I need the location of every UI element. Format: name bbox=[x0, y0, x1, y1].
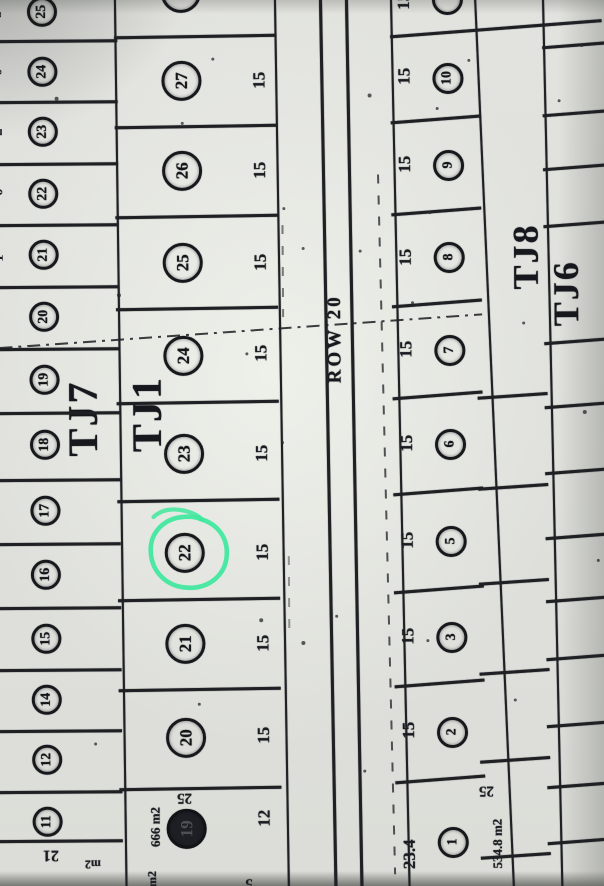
lot-circle: 24 bbox=[27, 57, 57, 87]
lot-number: 26 bbox=[172, 162, 192, 179]
ink-speck bbox=[411, 301, 414, 304]
grid-line-horizontal bbox=[393, 486, 483, 495]
lot-number: 19 bbox=[177, 820, 197, 837]
grid-line-vertical bbox=[319, 0, 338, 886]
grid-line-horizontal bbox=[114, 34, 276, 39]
lot-circle: 22 bbox=[165, 533, 205, 573]
grid-line-horizontal bbox=[543, 221, 604, 228]
lot-number: 1 bbox=[445, 838, 461, 845]
lot-circle: 26 bbox=[162, 151, 202, 191]
lot-circle: 2 bbox=[436, 716, 467, 747]
lot-dim-label: 15 bbox=[394, 0, 414, 18]
ink-speck bbox=[245, 352, 248, 355]
edge-fragment: 2 bbox=[0, 123, 6, 141]
grid-line-horizontal bbox=[391, 206, 481, 215]
grid-line-horizontal bbox=[0, 162, 118, 165]
lot-circle: 3 bbox=[436, 621, 467, 652]
block-label-tj7: TJ7 bbox=[60, 353, 107, 483]
lot-number: 22 bbox=[35, 187, 51, 201]
bottom-mid-unit-fragment: m2 bbox=[145, 864, 161, 886]
lot-number: 18 bbox=[37, 438, 53, 452]
ink-speck bbox=[94, 742, 97, 745]
edge-fragment: 1 bbox=[0, 249, 7, 267]
grid-line-horizontal bbox=[0, 100, 118, 103]
lot-circle: 10 bbox=[432, 62, 463, 93]
bottom-left-width-fragment: 21 bbox=[34, 846, 68, 864]
grid-line-horizontal bbox=[547, 782, 604, 789]
lot-dim-label: 15 bbox=[251, 336, 271, 370]
lot-number: 23 bbox=[174, 445, 194, 462]
ink-speck bbox=[597, 559, 600, 562]
lot19-side-width-label: 25 bbox=[166, 788, 202, 806]
lot-circle: 8 bbox=[433, 241, 464, 272]
grid-line-horizontal bbox=[0, 839, 123, 842]
lot-number: 3 bbox=[443, 633, 459, 640]
ink-speck bbox=[363, 770, 366, 773]
lot-number: 6 bbox=[442, 440, 458, 447]
grid-line-horizontal bbox=[478, 392, 548, 399]
lot-dim-label: 15 bbox=[251, 245, 271, 279]
lot-dim-label: 15 bbox=[398, 619, 418, 653]
ink-speck bbox=[181, 122, 184, 125]
grid-line-horizontal bbox=[393, 390, 483, 399]
lot-dim-label: 15 bbox=[395, 147, 415, 181]
lot-circle: 21 bbox=[165, 624, 205, 664]
lot-circle: 21 bbox=[29, 240, 59, 270]
grid-line-horizontal bbox=[115, 124, 277, 129]
lot-circle: 25 bbox=[27, 0, 57, 27]
lot-number: 17 bbox=[37, 504, 53, 518]
grid-line-horizontal bbox=[480, 668, 550, 675]
lot-dim-label: 15 bbox=[250, 153, 270, 187]
ink-speck bbox=[302, 247, 305, 250]
lot-number: 15 bbox=[38, 632, 54, 646]
lot-circle: 7 bbox=[434, 334, 465, 365]
ink-speck bbox=[426, 639, 429, 642]
grid-line-horizontal bbox=[547, 721, 604, 728]
lot-dim-label: 12 bbox=[255, 801, 275, 835]
lot-circle: 19 bbox=[167, 809, 207, 849]
lot-circle: 18 bbox=[30, 430, 60, 460]
ink-speck bbox=[583, 410, 587, 414]
grid-line-horizontal bbox=[119, 687, 281, 692]
grid-line-horizontal bbox=[390, 19, 602, 38]
lot-circle: 11 bbox=[33, 807, 63, 837]
ink-speck bbox=[368, 94, 372, 98]
lot-dim-label: 15 bbox=[254, 718, 274, 752]
grid-line-horizontal bbox=[480, 756, 550, 763]
grid-line-horizontal bbox=[478, 483, 548, 490]
lot-number: 21 bbox=[36, 248, 52, 262]
grid-line-horizontal bbox=[542, 42, 604, 49]
lot-circle: 5 bbox=[435, 525, 466, 556]
lot-number: 7 bbox=[441, 346, 457, 353]
grid-line-vertical bbox=[345, 0, 364, 886]
lot-dim-label: 23.4 bbox=[400, 822, 420, 886]
lot1-area-label: 534.8 m2 bbox=[490, 807, 507, 881]
ink-speck bbox=[282, 207, 285, 210]
ink-speck bbox=[558, 99, 561, 102]
lot-number: 11 bbox=[40, 815, 56, 828]
lot-circle: 12 bbox=[32, 745, 62, 775]
lot-dim-label: 15 bbox=[399, 713, 419, 747]
grid-line-horizontal bbox=[394, 584, 484, 593]
bottom-left-unit-fragment: m2 bbox=[78, 855, 108, 871]
lot-number: 2 bbox=[444, 728, 460, 735]
grid-line-horizontal bbox=[0, 223, 118, 226]
grid-line-horizontal bbox=[479, 578, 549, 585]
ink-speck bbox=[428, 211, 431, 214]
lot19-area-label: 666 m2 bbox=[147, 798, 163, 856]
lot-circle: 27 bbox=[161, 61, 201, 101]
lot-dim-label: 15 bbox=[249, 63, 269, 97]
plat-map-photo: TJ7 TJ1 TJ8 TJ6 ROW 20 666 m2 25 534.8 m… bbox=[0, 0, 604, 886]
lot-number: 20 bbox=[36, 310, 52, 324]
lot-circle: 20 bbox=[29, 302, 59, 332]
lot-circle: 23 bbox=[164, 434, 204, 474]
ink-speck bbox=[514, 699, 517, 702]
lot-number: 24 bbox=[173, 347, 193, 364]
ink-speck bbox=[301, 641, 305, 645]
map-layer: TJ7 TJ1 TJ8 TJ6 ROW 20 666 m2 25 534.8 m… bbox=[0, 0, 604, 886]
ink-speck bbox=[198, 703, 201, 706]
lot-number: 22 bbox=[175, 544, 195, 561]
lot-number: 8 bbox=[441, 253, 457, 260]
grid-line-horizontal bbox=[545, 402, 604, 409]
grid-line-horizontal bbox=[0, 542, 121, 545]
edge-fragment: 0 bbox=[0, 63, 5, 81]
lot-number: 14 bbox=[39, 693, 55, 707]
grid-line-horizontal bbox=[116, 306, 278, 311]
lot-dim-label: 15 bbox=[394, 59, 414, 93]
grid-line-horizontal bbox=[391, 114, 481, 123]
lot-circle: 19 bbox=[29, 365, 59, 395]
road-offset-dashed-line bbox=[377, 174, 396, 874]
highlight-circle-tail bbox=[153, 509, 202, 520]
grid-line-horizontal bbox=[0, 729, 122, 732]
ink-speck bbox=[359, 250, 362, 253]
road-offset-dashed-line bbox=[288, 556, 291, 636]
lot-circle: 20 bbox=[166, 718, 206, 758]
lot-circle bbox=[431, 0, 462, 15]
lot-dim-label: 15 bbox=[253, 535, 273, 569]
grid-line-horizontal bbox=[546, 654, 604, 661]
block-label-tj8: TJ8 bbox=[505, 196, 546, 316]
ink-speck bbox=[335, 615, 338, 618]
grid-line-horizontal bbox=[117, 498, 279, 503]
grid-line-horizontal bbox=[0, 347, 119, 350]
grid-line-horizontal bbox=[0, 606, 121, 609]
lot-circle: 15 bbox=[31, 624, 61, 654]
lot-number: 12 bbox=[39, 753, 55, 767]
lot-circle bbox=[161, 0, 201, 13]
lot-number: 9 bbox=[440, 161, 456, 168]
edge-fragment: 0 bbox=[0, 183, 6, 201]
ink-speck bbox=[259, 618, 263, 622]
ink-speck bbox=[37, 543, 40, 546]
lot-circle: 9 bbox=[432, 149, 463, 180]
lot-number: 25 bbox=[173, 254, 193, 271]
bottom-mid-digit-fragment: 5 bbox=[239, 872, 259, 886]
lot-dim-label: 15 bbox=[396, 332, 416, 366]
lot-number: 10 bbox=[439, 71, 455, 85]
lot-circle: 14 bbox=[32, 685, 62, 715]
lot-dim-label: 15 bbox=[396, 240, 416, 274]
lot-circle: 23 bbox=[28, 117, 58, 147]
lot-number: 27 bbox=[171, 72, 191, 89]
lot-number: 5 bbox=[443, 537, 459, 544]
grid-line-horizontal bbox=[0, 285, 119, 288]
grid-line-horizontal bbox=[392, 298, 482, 307]
lot1-side-width-label: 25 bbox=[468, 781, 504, 799]
lot-number: 25 bbox=[34, 5, 50, 19]
grid-line-vertical bbox=[474, 0, 516, 886]
grid-line-horizontal bbox=[115, 214, 277, 219]
lot-circle: 1 bbox=[437, 826, 468, 857]
lot-dim-label: 15 bbox=[253, 626, 273, 660]
ink-speck bbox=[281, 441, 284, 444]
lot-dim-label: 15 bbox=[397, 426, 417, 460]
lot-dim-label: 15 bbox=[398, 523, 418, 557]
grid-line-horizontal bbox=[548, 838, 604, 845]
road-offset-dashed-line bbox=[281, 225, 284, 317]
lot-number: 16 bbox=[38, 568, 54, 582]
lot-circle: 16 bbox=[31, 560, 61, 590]
lot-number: 19 bbox=[37, 373, 53, 387]
grid-line-horizontal bbox=[543, 164, 604, 171]
edge-fragment: 5 bbox=[0, 5, 5, 23]
ink-speck bbox=[436, 107, 439, 110]
grid-line-horizontal bbox=[543, 110, 604, 117]
lot-circle: 24 bbox=[163, 336, 203, 376]
lot-circle: 22 bbox=[28, 179, 58, 209]
grid-line-horizontal bbox=[0, 668, 122, 671]
grid-line-horizontal bbox=[118, 597, 280, 602]
ink-speck bbox=[467, 59, 470, 62]
ink-speck bbox=[55, 97, 59, 101]
grid-line-horizontal bbox=[395, 678, 485, 687]
ink-speck bbox=[117, 293, 121, 297]
lot-circle: 25 bbox=[163, 243, 203, 283]
lot-dim-label: 15 bbox=[252, 436, 272, 470]
lot-number: 21 bbox=[175, 635, 195, 652]
lot-number: 23 bbox=[35, 125, 51, 139]
ink-speck bbox=[580, 44, 583, 47]
grid-line-vertical bbox=[542, 0, 564, 886]
lot-number: 24 bbox=[34, 65, 50, 79]
grid-line-horizontal bbox=[0, 790, 122, 793]
ink-speck bbox=[522, 321, 525, 324]
grid-line-horizontal bbox=[0, 39, 117, 42]
lot-circle: 6 bbox=[434, 428, 465, 459]
lot-circle: 17 bbox=[30, 496, 60, 526]
lot-number: 20 bbox=[176, 729, 196, 746]
ink-speck bbox=[211, 58, 214, 61]
